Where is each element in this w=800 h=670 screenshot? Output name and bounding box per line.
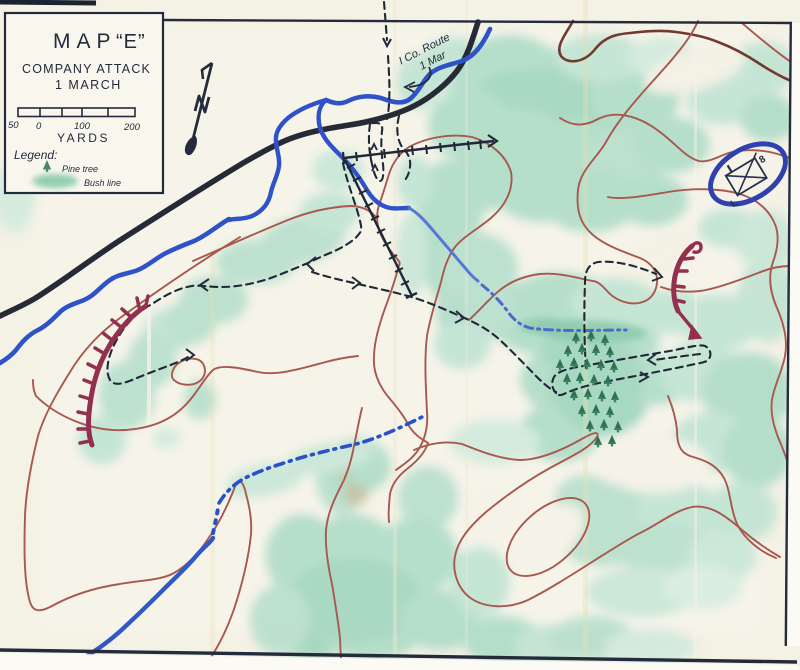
svg-text:200: 200 [123, 122, 141, 133]
svg-text:0: 0 [36, 121, 42, 132]
svg-text:50: 50 [8, 120, 19, 131]
svg-text:Legend:: Legend: [14, 148, 57, 162]
svg-text:MAP: MAP [53, 30, 117, 53]
svg-text:1 MARCH: 1 MARCH [55, 78, 122, 92]
svg-text:COMPANY ATTACK: COMPANY ATTACK [22, 62, 151, 76]
svg-text:Pine tree: Pine tree [62, 164, 98, 174]
svg-text:Bush line: Bush line [84, 178, 121, 188]
svg-text:YARDS: YARDS [57, 131, 110, 145]
svg-text:“E”: “E” [116, 31, 146, 53]
